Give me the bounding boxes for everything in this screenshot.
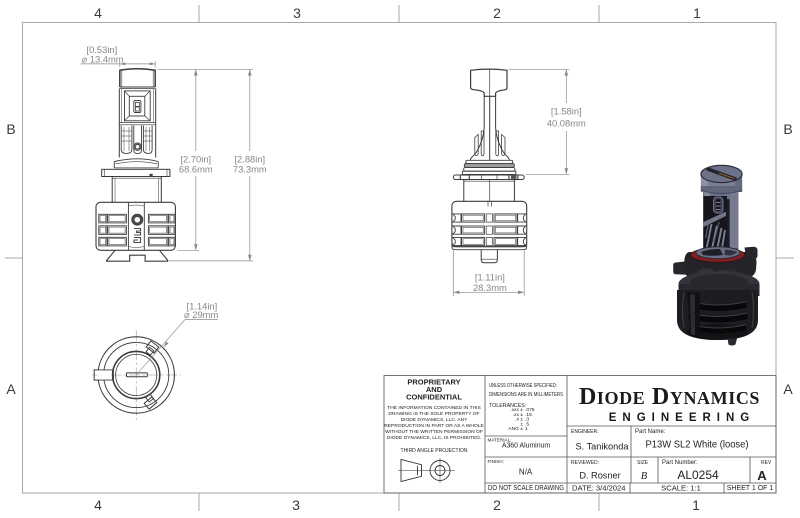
svg-text:ANG ±: ANG ± [508,426,523,432]
svg-text:3: 3 [293,5,301,21]
svg-text:ENGINEERING: ENGINEERING [609,412,756,424]
svg-text:[1.58in]: [1.58in] [551,106,582,117]
svg-text:Part Number:: Part Number: [662,460,698,466]
svg-text:40.08mm: 40.08mm [547,118,586,129]
svg-text:1: 1 [525,426,528,432]
svg-text:A: A [757,468,767,483]
svg-text:UNLESS OTHERWISE SPECIFIED:: UNLESS OTHERWISE SPECIFIED: [489,383,557,389]
svg-text:⌀ 29mm: ⌀ 29mm [184,309,218,320]
svg-text:73.3mm: 73.3mm [233,164,267,175]
svg-text:CONFIDENTIAL: CONFIDENTIAL [406,393,462,402]
svg-text:AL0254: AL0254 [677,468,719,482]
svg-text:SHEET 1 OF 1: SHEET 1 OF 1 [727,485,774,492]
svg-text:28.3mm: 28.3mm [473,282,507,293]
svg-text:[1.11in]: [1.11in] [475,272,505,283]
svg-text:DO NOT SCALE DRAWING: DO NOT SCALE DRAWING [488,483,564,492]
svg-text:N/A: N/A [519,468,533,477]
svg-text:4: 4 [94,497,102,513]
svg-text:DIMENSIONS ARE IN MILLIMETERS: DIMENSIONS ARE IN MILLIMETERS [489,392,563,398]
svg-text:ENGINEER:: ENGINEER: [571,429,599,435]
svg-text:S. Tanikonda: S. Tanikonda [576,442,630,452]
svg-text:2: 2 [493,5,501,21]
svg-text:DATE: 3/4/2024: DATE: 3/4/2024 [572,484,625,493]
svg-text:THIRD ANGLE PROJECTION: THIRD ANGLE PROJECTION [401,448,468,454]
svg-text:REVIEWED:: REVIEWED: [571,460,599,466]
svg-text:DIODE DYNAMICS, LLC, IS PROHIB: DIODE DYNAMICS, LLC, IS PROHIBITED. [387,435,481,441]
svg-text:P13W SL2 White (loose): P13W SL2 White (loose) [646,440,749,451]
svg-text:A: A [6,381,16,397]
svg-text:REPRODUCTION IN PART OR AS A W: REPRODUCTION IN PART OR AS A WHOLE [384,423,484,429]
svg-text:1: 1 [692,497,700,513]
svg-text:SCALE: 1:1: SCALE: 1:1 [661,484,701,493]
svg-text:2: 2 [493,497,501,513]
svg-text:3: 3 [292,497,300,513]
svg-text:THE INFORMATION CONTAINED IN T: THE INFORMATION CONTAINED IN THIS [387,405,481,411]
svg-text:B: B [641,471,648,482]
svg-text:SIZE: SIZE [637,460,649,466]
svg-text:A360 Aluminum: A360 Aluminum [502,443,551,450]
svg-text:WITHOUT THE WRITTEN PERMISSION: WITHOUT THE WRITTEN PERMISSION OF [385,429,483,435]
svg-text:68.6mm: 68.6mm [179,164,213,175]
svg-text:DRAWING IS THE SOLE PROPERTY O: DRAWING IS THE SOLE PROPERTY OF [388,411,479,417]
svg-text:⌀ 13.4mm: ⌀ 13.4mm [82,54,124,65]
svg-text:DIODE DYNAMICS: DIODE DYNAMICS [579,384,760,410]
svg-text:FINISH:: FINISH: [488,459,504,464]
svg-text:B: B [6,121,15,137]
svg-text:Part Name:: Part Name: [635,429,666,435]
svg-text:DIODE DYNAMICS, LLC. ANY: DIODE DYNAMICS, LLC. ANY [401,417,469,423]
svg-text:1: 1 [693,5,701,21]
svg-text:B: B [783,121,792,137]
svg-text:A: A [783,381,793,397]
svg-text:REV: REV [761,460,772,466]
svg-text:4: 4 [94,5,102,21]
svg-text:D. Rosner: D. Rosner [579,471,620,481]
